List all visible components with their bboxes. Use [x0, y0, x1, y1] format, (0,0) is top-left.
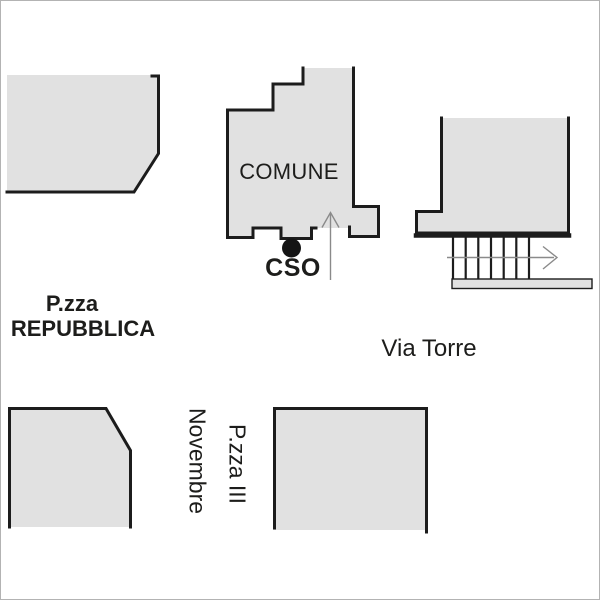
street-map-canvas: COMUNE CSO	[0, 0, 600, 600]
via-torre-label: Via Torre	[381, 335, 476, 362]
building-top-left	[7, 75, 160, 193]
building-bottom-left	[8, 407, 132, 527]
piazza-repubblica-line2: REPUBBLICA	[11, 316, 155, 341]
building-top-right	[415, 118, 570, 236]
piazza-iii-novembre-label: P.zza III Novembre	[185, 408, 251, 514]
piazza-repubblica-label: P.zza REPUBBLICA	[11, 291, 155, 341]
piazza-iii-novembre-line2: Novembre	[185, 408, 211, 514]
right-arrow-icon	[447, 247, 557, 270]
cso-label: CSO	[265, 254, 321, 282]
street-map: COMUNE CSO	[0, 0, 600, 600]
piazza-iii-novembre-line1: P.zza III	[225, 424, 251, 504]
up-arrow-icon	[322, 213, 339, 281]
sidewalk-strip	[452, 279, 592, 289]
building-bottom-right	[273, 407, 428, 532]
building-comune: COMUNE	[226, 68, 380, 280]
piazza-repubblica-line1: P.zza	[46, 291, 99, 316]
comune-label: COMUNE	[239, 159, 339, 184]
